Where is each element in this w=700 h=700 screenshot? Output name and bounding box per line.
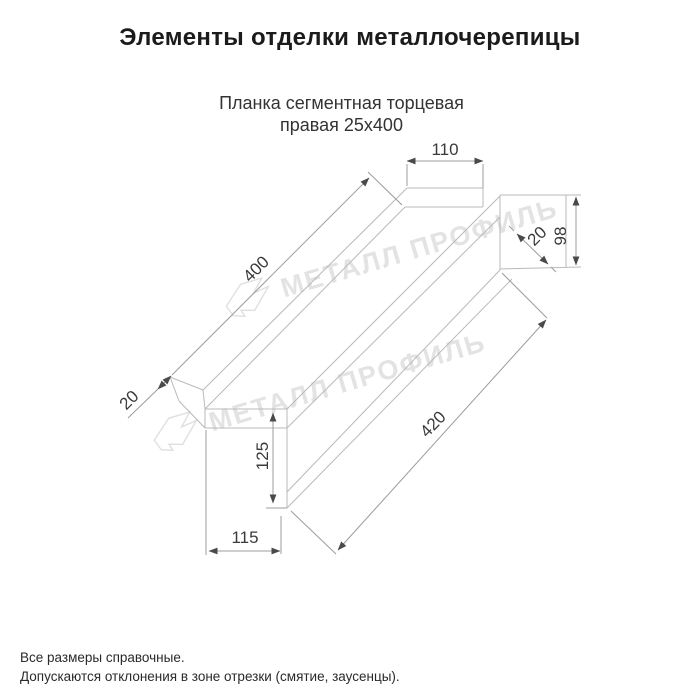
dim-top-width-label: 110 xyxy=(431,140,458,159)
dim-left-face-height-label: 125 xyxy=(253,442,272,470)
dim-length-top-label: 400 xyxy=(239,252,272,285)
dim-length-bottom-label: 420 xyxy=(416,407,449,441)
dimension-labels: 110 98 20 400 420 20 125 115 xyxy=(116,140,570,547)
footer-notes: Все размеры справочные. Допускаются откл… xyxy=(20,648,400,686)
dim-left-face-width-label: 115 xyxy=(231,528,258,547)
watermark-text: МЕТАЛЛ ПРОФИЛЬ xyxy=(277,193,561,303)
catalog-page: Элементы отделки металлочерепицы Планка … xyxy=(0,0,700,700)
dim-left-fold-label: 20 xyxy=(116,387,143,414)
technical-drawing: МЕТАЛЛ ПРОФИЛЬ МЕТАЛЛ ПРОФИЛЬ xyxy=(0,0,700,700)
dim-end-height-label: 98 xyxy=(551,227,570,246)
footer-note-2: Допускаются отклонения в зоне отрезки (с… xyxy=(20,667,400,686)
footer-note-1: Все размеры справочные. xyxy=(20,648,400,667)
